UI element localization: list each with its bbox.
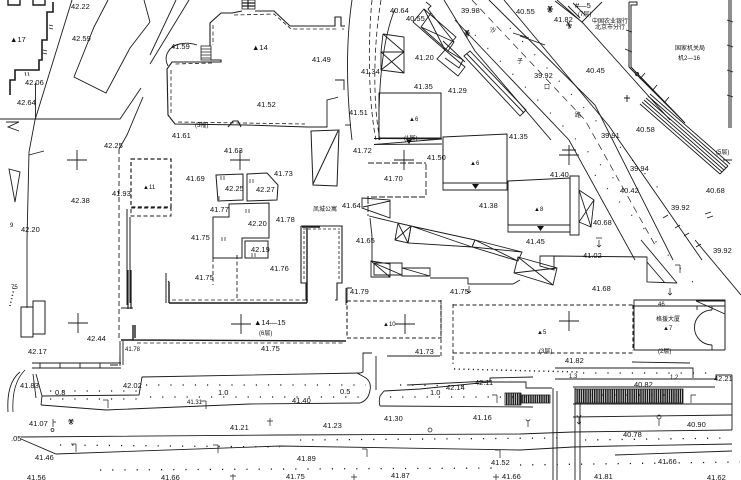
svg-text:41.16: 41.16 — [473, 413, 492, 422]
svg-text:1.3: 1.3 — [569, 374, 578, 380]
svg-text:42.44: 42.44 — [87, 334, 106, 343]
svg-text:(2层): (2层) — [658, 348, 671, 355]
svg-text:41.56: 41.56 — [27, 473, 46, 480]
svg-text:▲7: ▲7 — [663, 326, 673, 332]
svg-text:42.27: 42.27 — [256, 185, 275, 194]
svg-text:沙: 沙 — [490, 27, 496, 34]
svg-text:(5层): (5层) — [716, 149, 729, 156]
svg-text:41.70: 41.70 — [384, 174, 403, 183]
svg-text:0.5: 0.5 — [340, 387, 350, 396]
svg-text:41.77: 41.77 — [210, 205, 229, 214]
svg-text:42.25: 42.25 — [225, 184, 244, 193]
svg-text:41.75: 41.75 — [195, 273, 214, 282]
svg-text:42.22: 42.22 — [71, 2, 90, 11]
svg-text:41.75: 41.75 — [191, 233, 210, 242]
svg-text:40.55: 40.55 — [406, 14, 425, 23]
svg-text:39.94: 39.94 — [630, 164, 649, 173]
svg-text:#—5: #—5 — [575, 1, 591, 10]
svg-text:41.50: 41.50 — [427, 153, 446, 162]
svg-text:41.46: 41.46 — [35, 453, 54, 462]
svg-text:42.20: 42.20 — [21, 225, 40, 234]
svg-text:39.92: 39.92 — [671, 203, 690, 212]
svg-text:46: 46 — [658, 302, 665, 308]
svg-text:42.17: 42.17 — [28, 347, 47, 356]
svg-text:41.52: 41.52 — [491, 458, 510, 467]
svg-text:41.31: 41.31 — [187, 400, 203, 406]
svg-text:41.72: 41.72 — [353, 146, 372, 155]
svg-text:39.92: 39.92 — [534, 71, 553, 80]
svg-text:▲5: ▲5 — [537, 330, 547, 336]
svg-text:41.34: 41.34 — [361, 67, 380, 76]
svg-text:中国农业银行: 中国农业银行 — [592, 17, 628, 25]
svg-text:41.59: 41.59 — [171, 42, 190, 51]
svg-text:41.49: 41.49 — [312, 55, 331, 64]
svg-text:(6层): (6层) — [259, 330, 272, 337]
svg-text:40.78: 40.78 — [623, 430, 642, 439]
svg-text:41.64: 41.64 — [342, 201, 361, 210]
svg-text:41.35: 41.35 — [509, 132, 528, 141]
svg-text:42.64: 42.64 — [17, 98, 36, 107]
svg-text:41.76: 41.76 — [270, 264, 289, 273]
svg-text:41.82: 41.82 — [554, 15, 573, 24]
svg-text:41.30: 41.30 — [384, 414, 403, 423]
svg-text:0.8: 0.8 — [55, 388, 65, 397]
svg-text:▲8: ▲8 — [534, 207, 544, 213]
svg-text:41.78: 41.78 — [276, 215, 295, 224]
svg-text:41.45: 41.45 — [526, 237, 545, 246]
svg-text:▲11: ▲11 — [143, 185, 156, 191]
svg-text:41.89: 41.89 — [297, 454, 316, 463]
svg-text:41.69: 41.69 — [186, 174, 205, 183]
svg-text:北京市分行: 北京市分行 — [595, 23, 625, 31]
svg-text:40.55: 40.55 — [516, 7, 535, 16]
svg-text:41.73: 41.73 — [274, 169, 293, 178]
svg-text:▲6: ▲6 — [470, 161, 480, 167]
svg-text:41.62: 41.62 — [707, 473, 726, 480]
svg-text:40.68: 40.68 — [706, 186, 725, 195]
svg-text:▲14: ▲14 — [252, 43, 268, 52]
svg-text:41.73: 41.73 — [415, 347, 434, 356]
svg-text:41.66: 41.66 — [502, 472, 521, 480]
svg-text:(1层): (1层) — [404, 135, 417, 142]
svg-text:40.45: 40.45 — [586, 66, 605, 75]
svg-text:41.07: 41.07 — [29, 419, 48, 428]
svg-text:41.35: 41.35 — [414, 82, 433, 91]
svg-text:▲10: ▲10 — [383, 322, 396, 328]
svg-text:机2—16: 机2—16 — [678, 54, 701, 62]
svg-text:凤城公寓: 凤城公寓 — [313, 205, 337, 213]
svg-text:▲6: ▲6 — [409, 117, 419, 123]
svg-text:41.02: 41.02 — [583, 251, 602, 260]
svg-text:41.20: 41.20 — [415, 53, 434, 62]
svg-text:42.20: 42.20 — [248, 219, 267, 228]
svg-text:41.38: 41.38 — [479, 201, 498, 210]
svg-text:41.63: 41.63 — [224, 146, 243, 155]
svg-text:39.98: 39.98 — [461, 6, 480, 15]
svg-text:子: 子 — [517, 58, 523, 65]
svg-text:41.65: 41.65 — [356, 236, 375, 245]
svg-text:(7层): (7层) — [578, 11, 591, 18]
svg-text:1.2: 1.2 — [670, 375, 679, 381]
svg-text:41.87: 41.87 — [391, 471, 410, 480]
svg-text:41.75: 41.75 — [261, 344, 280, 353]
svg-text:42.25: 42.25 — [104, 141, 123, 150]
svg-text:41.68: 41.68 — [592, 284, 611, 293]
svg-text:41.75: 41.75 — [286, 472, 305, 480]
svg-text:41.75: 41.75 — [450, 287, 469, 296]
svg-text:42.59: 42.59 — [72, 34, 91, 43]
svg-text:39.92: 39.92 — [713, 246, 732, 255]
svg-text:41.93: 41.93 — [112, 189, 131, 198]
svg-text:41.51: 41.51 — [349, 108, 368, 117]
svg-text:40.58: 40.58 — [636, 125, 655, 134]
svg-text:41.23: 41.23 — [323, 421, 342, 430]
svg-text:42.38: 42.38 — [71, 196, 90, 205]
svg-text:41.52: 41.52 — [257, 100, 276, 109]
svg-text:41.29: 41.29 — [448, 86, 467, 95]
svg-text:42.02: 42.02 — [123, 381, 142, 390]
svg-text:42.06: 42.06 — [25, 78, 44, 87]
svg-text:口: 口 — [544, 84, 550, 91]
svg-text:40.68: 40.68 — [593, 218, 612, 227]
svg-text:40.90: 40.90 — [687, 420, 706, 429]
svg-text:42.21: 42.21 — [714, 374, 733, 383]
svg-text:▲17: ▲17 — [10, 35, 26, 44]
svg-text:.05: .05 — [11, 434, 21, 443]
svg-text:41.21: 41.21 — [230, 423, 249, 432]
svg-text:路: 路 — [575, 111, 581, 119]
svg-text:(3幢): (3幢) — [195, 121, 208, 129]
svg-text:40.42: 40.42 — [620, 186, 639, 195]
svg-text:42.19: 42.19 — [251, 245, 270, 254]
svg-text:41.66: 41.66 — [161, 473, 180, 480]
svg-text:41.78: 41.78 — [125, 347, 141, 353]
svg-text:41.40: 41.40 — [550, 170, 569, 179]
svg-text:42.14: 42.14 — [446, 383, 465, 392]
svg-text:41.61: 41.61 — [172, 131, 191, 140]
svg-text:格援大厦: 格援大厦 — [656, 315, 680, 323]
svg-text:40.82: 40.82 — [634, 380, 653, 389]
svg-text:国家机关局: 国家机关局 — [675, 44, 705, 52]
svg-text:1.0: 1.0 — [430, 388, 440, 397]
svg-text:41.40: 41.40 — [292, 396, 311, 405]
svg-text:39.91: 39.91 — [601, 131, 620, 140]
svg-text:75: 75 — [11, 285, 18, 291]
svg-text:1.0: 1.0 — [218, 388, 228, 397]
svg-text:41.82: 41.82 — [565, 356, 584, 365]
svg-text:41.81: 41.81 — [594, 472, 613, 480]
svg-text:41.83: 41.83 — [20, 381, 39, 390]
svg-text:41.66: 41.66 — [658, 457, 677, 466]
svg-text:(3层): (3层) — [539, 348, 552, 355]
svg-text:42.11: 42.11 — [475, 378, 493, 387]
svg-text:41.79: 41.79 — [350, 287, 369, 296]
svg-text:▲14—15: ▲14—15 — [254, 318, 286, 327]
